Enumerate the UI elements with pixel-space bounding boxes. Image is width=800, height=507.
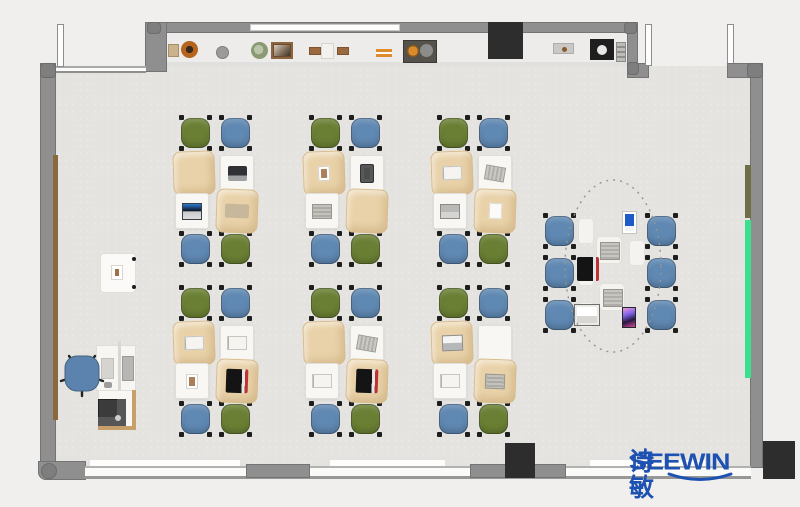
chair-foot — [337, 115, 342, 120]
chair-foot — [543, 255, 548, 260]
chair-foot — [337, 432, 342, 437]
photo-icon — [318, 165, 331, 180]
notebook-striped-icon — [484, 164, 506, 182]
chair-foot — [219, 285, 224, 290]
white-desk — [478, 325, 512, 361]
laptop-silver-icon — [441, 335, 463, 352]
chair-foot — [505, 146, 510, 151]
chair-foot — [543, 244, 548, 249]
desk-partition — [98, 426, 136, 430]
white-desk — [305, 363, 339, 399]
chair-foot — [179, 316, 184, 321]
chair-foot — [437, 285, 442, 290]
green-chair — [349, 231, 382, 267]
blue-chair — [477, 285, 510, 321]
chair-foot — [207, 115, 212, 120]
chair-seat — [181, 234, 210, 264]
white-desk — [175, 363, 209, 399]
green-chair — [219, 231, 252, 267]
chair-foot — [477, 146, 482, 151]
white-desk — [350, 155, 384, 191]
shelf-item-appliance-dark — [590, 39, 614, 60]
chair-foot — [207, 285, 212, 290]
chair-foot — [219, 146, 224, 151]
chair-foot — [437, 231, 442, 236]
structural-column — [763, 441, 795, 479]
green-chair — [477, 231, 510, 267]
tan-desk — [215, 358, 259, 403]
chair-foot — [309, 285, 314, 290]
chair-foot — [377, 432, 382, 437]
chair-seat — [181, 288, 210, 318]
chair-seat — [351, 118, 380, 148]
chair-foot — [437, 262, 442, 267]
logo-cjk: 诗敏 — [629, 449, 654, 502]
blue-chair — [437, 231, 470, 267]
collab-table-outline — [558, 176, 668, 356]
chair-foot — [207, 262, 212, 267]
blue-chair — [219, 285, 252, 321]
tan-desk — [172, 320, 216, 365]
chair-foot — [377, 285, 382, 290]
chair-foot — [437, 316, 442, 321]
tan-desk — [345, 358, 389, 403]
chair-foot — [465, 432, 470, 437]
white-desk — [433, 193, 467, 229]
tan-desk — [430, 150, 474, 195]
chair-foot — [505, 115, 510, 120]
green-chair — [309, 115, 342, 151]
chair-foot — [505, 432, 510, 437]
green-chair — [179, 115, 212, 151]
chair-foot — [337, 401, 342, 406]
blue-chair — [437, 401, 470, 437]
chair-foot — [179, 231, 184, 236]
green-chair — [309, 285, 342, 321]
chair-foot — [477, 262, 482, 267]
chair-foot — [477, 432, 482, 437]
green-chair — [437, 285, 470, 321]
chair-seat — [479, 404, 508, 434]
laptop-black-icon — [226, 369, 249, 394]
white-desk — [478, 155, 512, 191]
photo-icon — [186, 374, 198, 389]
chair-seat — [439, 118, 468, 148]
laptop-open-icon — [182, 203, 202, 220]
white-desk — [433, 363, 467, 399]
green-chair — [437, 115, 470, 151]
chair-foot — [207, 432, 212, 437]
book-open-icon — [440, 374, 460, 388]
structural-column — [488, 22, 523, 59]
shelf-item-plant-green — [251, 42, 268, 59]
book-open-icon — [184, 336, 204, 351]
blue-chair — [477, 115, 510, 151]
tablet-dark-icon — [360, 164, 374, 183]
chair-foot — [247, 146, 252, 151]
chair-foot — [543, 286, 548, 291]
chair-foot — [377, 115, 382, 120]
shelf-item-tray-gray — [553, 43, 574, 54]
shelf-item-books-orange — [376, 49, 392, 57]
chair-seat — [351, 288, 380, 318]
chair-seat — [221, 404, 250, 434]
blue-chair — [349, 285, 382, 321]
blue-chair — [349, 115, 382, 151]
chair-foot — [207, 401, 212, 406]
chair-foot — [179, 262, 184, 267]
tan-desk — [430, 320, 474, 365]
chair-foot — [437, 401, 442, 406]
chair-seat — [181, 118, 210, 148]
chair-foot — [309, 432, 314, 437]
chair-foot — [673, 244, 678, 249]
chair-foot — [465, 262, 470, 267]
chair-foot — [337, 262, 342, 267]
chair-foot — [543, 213, 548, 218]
green-chair — [179, 285, 212, 321]
photo-on-table — [111, 265, 123, 280]
chair-foot — [219, 262, 224, 267]
chair-foot — [377, 316, 382, 321]
chair-foot — [309, 316, 314, 321]
chair-seat — [311, 288, 340, 318]
chair-foot — [673, 213, 678, 218]
shelf-item-box-tan — [168, 44, 179, 57]
logo-swoosh-icon — [667, 472, 733, 484]
monitor-icon — [122, 356, 134, 381]
chair-foot — [247, 432, 252, 437]
chair-foot — [465, 285, 470, 290]
shelf-item-ladder — [616, 42, 626, 62]
structural-column — [505, 443, 535, 478]
blue-chair — [219, 115, 252, 151]
chair-seat — [439, 404, 468, 434]
chair-foot — [377, 262, 382, 267]
chair-foot — [337, 231, 342, 236]
paper-icon — [488, 203, 502, 219]
white-desk — [175, 193, 209, 229]
chair-seat — [311, 118, 340, 148]
chair-seat — [181, 404, 210, 434]
shelf-item-tray-dark — [403, 40, 437, 63]
tan-desk — [172, 150, 216, 195]
chair-seat — [479, 118, 508, 148]
chair-foot — [543, 297, 548, 302]
chair-foot — [477, 285, 482, 290]
chair-foot — [377, 146, 382, 151]
chair-foot — [247, 316, 252, 321]
book-open-icon — [442, 166, 462, 181]
tan-desk — [302, 320, 346, 365]
chair-seat — [479, 288, 508, 318]
chair-foot — [179, 285, 184, 290]
chair-foot — [207, 231, 212, 236]
floor-plan-render: SEEWIN 诗敏 — [0, 0, 800, 507]
book-gray-icon — [312, 204, 332, 219]
chair-foot — [465, 401, 470, 406]
chair-foot — [673, 286, 678, 291]
chair-foot — [465, 115, 470, 120]
printer-icon — [98, 399, 126, 426]
shelf-item-disc-gray — [216, 46, 229, 59]
chair-seat — [351, 404, 380, 434]
chair-foot — [309, 262, 314, 267]
book-open-icon — [312, 374, 332, 388]
laptop-gray-icon — [440, 204, 460, 219]
tan-desk — [473, 358, 517, 403]
blue-chair — [309, 401, 342, 437]
table-foot — [132, 285, 136, 289]
tan-desk — [215, 188, 259, 233]
chair-foot — [309, 231, 314, 236]
chair-foot — [179, 115, 184, 120]
white-desk — [220, 325, 254, 361]
blue-chair — [179, 231, 212, 267]
chair-foot — [309, 146, 314, 151]
chair-foot — [247, 285, 252, 290]
shelf-item-pot-orange — [181, 41, 198, 58]
shelf-item-box-brown — [337, 47, 349, 55]
laptop-dark-icon — [228, 166, 247, 181]
green-chair — [349, 401, 382, 437]
chair-foot — [337, 285, 342, 290]
chair-foot — [673, 255, 678, 260]
chair-foot — [179, 432, 184, 437]
chair-foot — [437, 115, 442, 120]
blue-chair — [309, 231, 342, 267]
chair-seat — [311, 404, 340, 434]
white-desk — [220, 155, 254, 191]
chair-foot — [219, 316, 224, 321]
laptop-black-icon — [356, 369, 379, 394]
chair-seat — [351, 234, 380, 264]
chair-foot — [465, 231, 470, 236]
green-chair — [477, 401, 510, 437]
white-desk — [305, 193, 339, 229]
chair-seat — [439, 234, 468, 264]
notebook-striped-icon — [356, 334, 378, 352]
chair-foot — [349, 262, 354, 267]
chair-foot — [247, 262, 252, 267]
chair-foot — [543, 328, 548, 333]
shelf-item-box-brown — [309, 47, 321, 55]
chair-foot — [437, 146, 442, 151]
teacher-desk-divider — [118, 341, 121, 393]
chair-foot — [437, 432, 442, 437]
chair-foot — [505, 285, 510, 290]
chair-seat — [221, 234, 250, 264]
green-chair — [219, 401, 252, 437]
chair-foot — [247, 115, 252, 120]
blue-chair — [179, 401, 212, 437]
tan-desk — [345, 188, 389, 233]
teacher-office-chair — [58, 349, 106, 399]
chair-foot — [349, 316, 354, 321]
chair-foot — [673, 297, 678, 302]
shelf-item-frame-photo — [271, 42, 293, 59]
chair-foot — [219, 432, 224, 437]
chair-foot — [349, 115, 354, 120]
chair-seat — [221, 118, 250, 148]
chair-foot — [309, 115, 314, 120]
chair-seat — [439, 288, 468, 318]
chair-seat — [221, 288, 250, 318]
book-gray-icon — [485, 373, 506, 389]
chair-foot — [673, 328, 678, 333]
sketch-icon — [225, 204, 249, 219]
chair-foot — [349, 285, 354, 290]
table-foot — [132, 257, 136, 261]
shelf-item-box-white — [321, 43, 334, 59]
white-desk — [350, 325, 384, 361]
chair-foot — [349, 146, 354, 151]
chair-foot — [309, 401, 314, 406]
chair-foot — [179, 401, 184, 406]
chair-foot — [505, 316, 510, 321]
desk-partition — [132, 390, 136, 430]
chair-foot — [349, 432, 354, 437]
chair-seat — [479, 234, 508, 264]
tan-desk — [473, 188, 517, 233]
chair-foot — [477, 115, 482, 120]
tan-desk — [302, 150, 346, 195]
chair-foot — [477, 316, 482, 321]
side-table — [100, 253, 136, 293]
chair-foot — [219, 115, 224, 120]
chair-seat — [311, 234, 340, 264]
chair-foot — [505, 262, 510, 267]
chair-foot — [179, 146, 184, 151]
book-open-icon — [227, 336, 247, 350]
